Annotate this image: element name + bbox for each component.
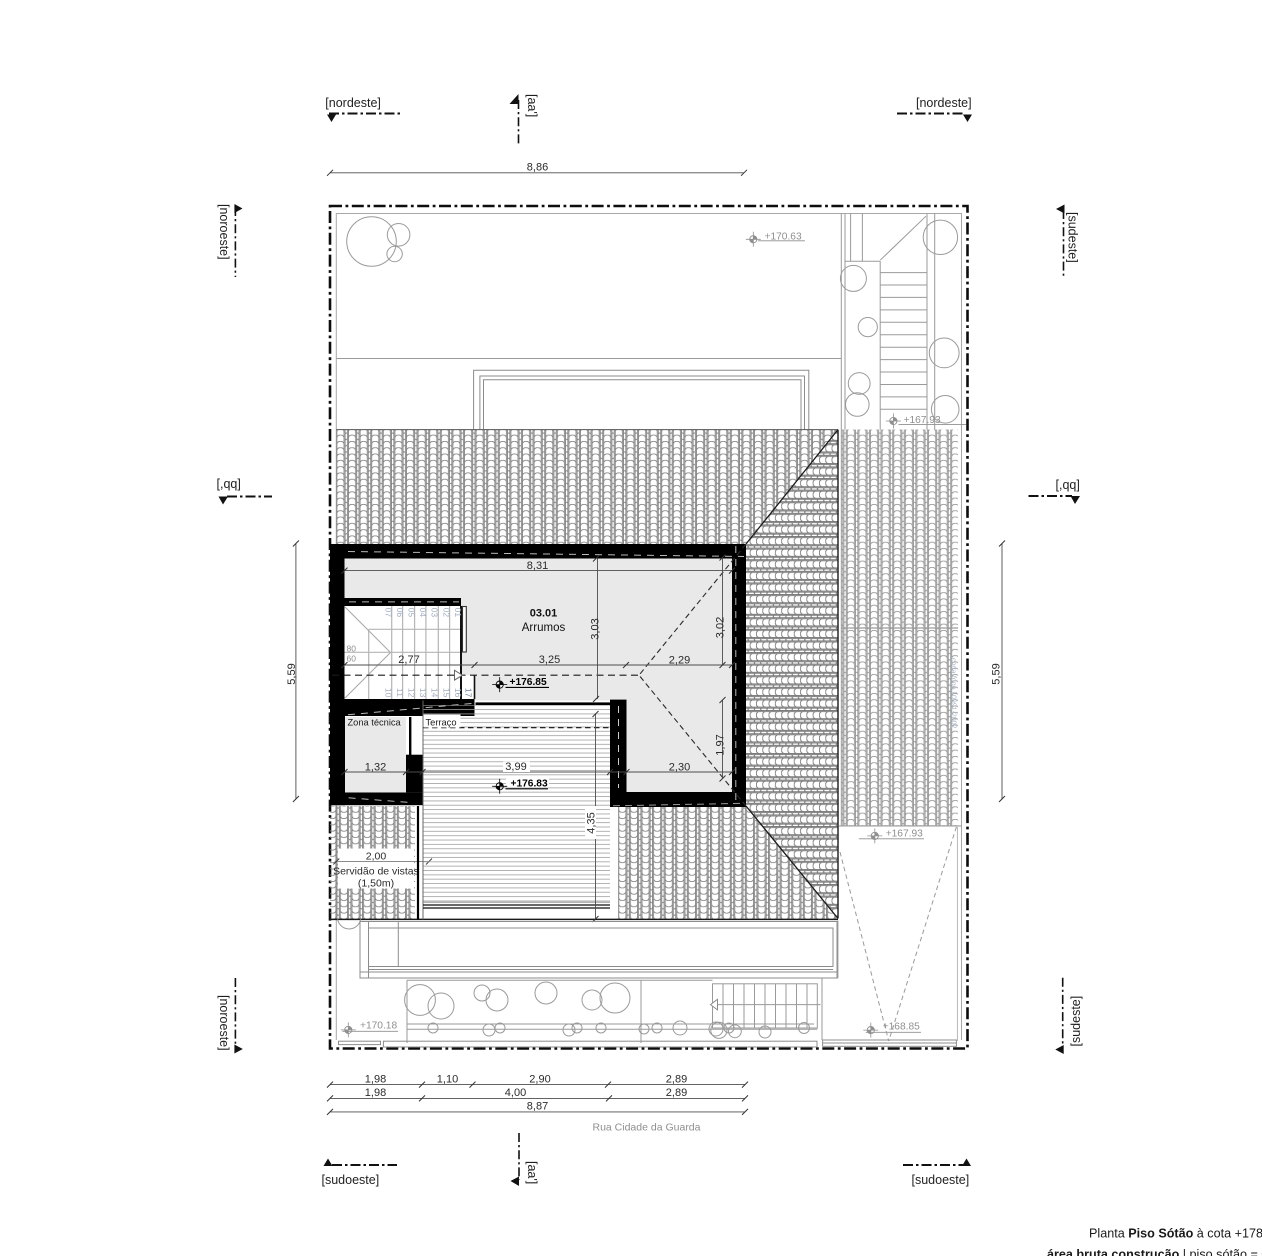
svg-text:2,77: 2,77: [398, 654, 419, 666]
svg-text:3,25: 3,25: [539, 654, 560, 666]
svg-text:+170.18: +170.18: [360, 1021, 397, 1032]
svg-text:[nordeste]: [nordeste]: [325, 96, 381, 110]
svg-text:[,qq]: [,qq]: [217, 477, 241, 491]
svg-text:área bruta construção | piso s: área bruta construção | piso sótão = 031…: [1047, 1248, 1262, 1256]
svg-text:Zona técnica: Zona técnica: [348, 718, 402, 728]
svg-text:+176.83: +176.83: [511, 778, 548, 789]
svg-text:60: 60: [347, 654, 357, 664]
svg-text:(1,50m): (1,50m): [358, 878, 394, 890]
svg-text:2,90: 2,90: [529, 1073, 550, 1085]
svg-text:[nordeste]: [nordeste]: [916, 96, 972, 110]
svg-text:17: 17: [464, 688, 474, 698]
svg-text:80: 80: [347, 644, 357, 654]
svg-text:15: 15: [441, 688, 451, 698]
svg-text:Planta Piso Sótão à cota +178.: Planta Piso Sótão à cota +178.40: [1089, 1227, 1262, 1241]
svg-text:[aa']: [aa']: [525, 94, 539, 117]
svg-text:+176.85: +176.85: [510, 677, 547, 688]
svg-text:3,03: 3,03: [590, 618, 602, 639]
svg-text:4,00: 4,00: [505, 1087, 526, 1099]
svg-text:1,98: 1,98: [365, 1087, 386, 1099]
svg-text:07: 07: [384, 608, 394, 618]
svg-text:[,qq]: [,qq]: [1056, 478, 1080, 492]
svg-text:16: 16: [453, 688, 463, 698]
svg-text:2,30: 2,30: [669, 762, 690, 774]
svg-text:3,99: 3,99: [505, 761, 526, 773]
svg-text:5,59: 5,59: [286, 663, 298, 684]
svg-text:2,29: 2,29: [669, 655, 690, 667]
svg-text:[sudoeste]: [sudoeste]: [322, 1173, 380, 1187]
svg-text:corta-fogo l 0991-2002: corta-fogo l 0991-2002: [950, 658, 957, 729]
svg-text:13: 13: [418, 688, 428, 698]
svg-text:[aa']: [aa']: [525, 1161, 539, 1184]
svg-text:01: 01: [453, 608, 463, 618]
svg-text:8,31: 8,31: [527, 560, 548, 572]
svg-text:Rua Cidade da Guarda: Rua Cidade da Guarda: [593, 1122, 701, 1134]
svg-text:5,59: 5,59: [991, 663, 1003, 684]
svg-text:1,32: 1,32: [365, 762, 386, 774]
svg-text:04: 04: [418, 608, 428, 618]
svg-text:11: 11: [395, 688, 405, 697]
svg-text:1,98: 1,98: [365, 1073, 386, 1085]
svg-text:12: 12: [406, 688, 416, 698]
svg-text:2,89: 2,89: [666, 1073, 687, 1085]
svg-text:8,87: 8,87: [527, 1101, 548, 1113]
svg-text:03: 03: [430, 608, 440, 618]
svg-text:[sudeste]: [sudeste]: [1066, 212, 1080, 263]
svg-text:14: 14: [430, 688, 440, 698]
svg-text:10: 10: [384, 688, 394, 698]
svg-text:[sudeste]: [sudeste]: [1069, 996, 1083, 1047]
svg-text:02: 02: [441, 608, 451, 618]
svg-text:3,02: 3,02: [715, 617, 727, 638]
svg-text:+168.85: +168.85: [883, 1022, 920, 1033]
svg-text:4,35: 4,35: [586, 812, 598, 833]
svg-text:[noroeste]: [noroeste]: [217, 995, 231, 1051]
svg-text:Terraço: Terraço: [426, 718, 457, 728]
svg-text:Arrumos: Arrumos: [522, 622, 566, 634]
svg-text:[noroeste]: [noroeste]: [217, 204, 231, 260]
svg-text:[sudoeste]: [sudoeste]: [912, 1173, 970, 1187]
svg-text:1,10: 1,10: [437, 1073, 458, 1085]
svg-text:2,89: 2,89: [666, 1087, 687, 1099]
svg-text:2,00: 2,00: [366, 851, 387, 863]
svg-text:+167.93: +167.93: [886, 829, 923, 840]
svg-text:1,97: 1,97: [715, 734, 727, 755]
svg-text:03.01: 03.01: [530, 608, 558, 620]
svg-text:05: 05: [406, 608, 416, 618]
svg-text:06: 06: [395, 608, 405, 618]
svg-text:8,86: 8,86: [527, 162, 548, 174]
svg-text:Servidão de vistas: Servidão de vistas: [333, 866, 419, 878]
